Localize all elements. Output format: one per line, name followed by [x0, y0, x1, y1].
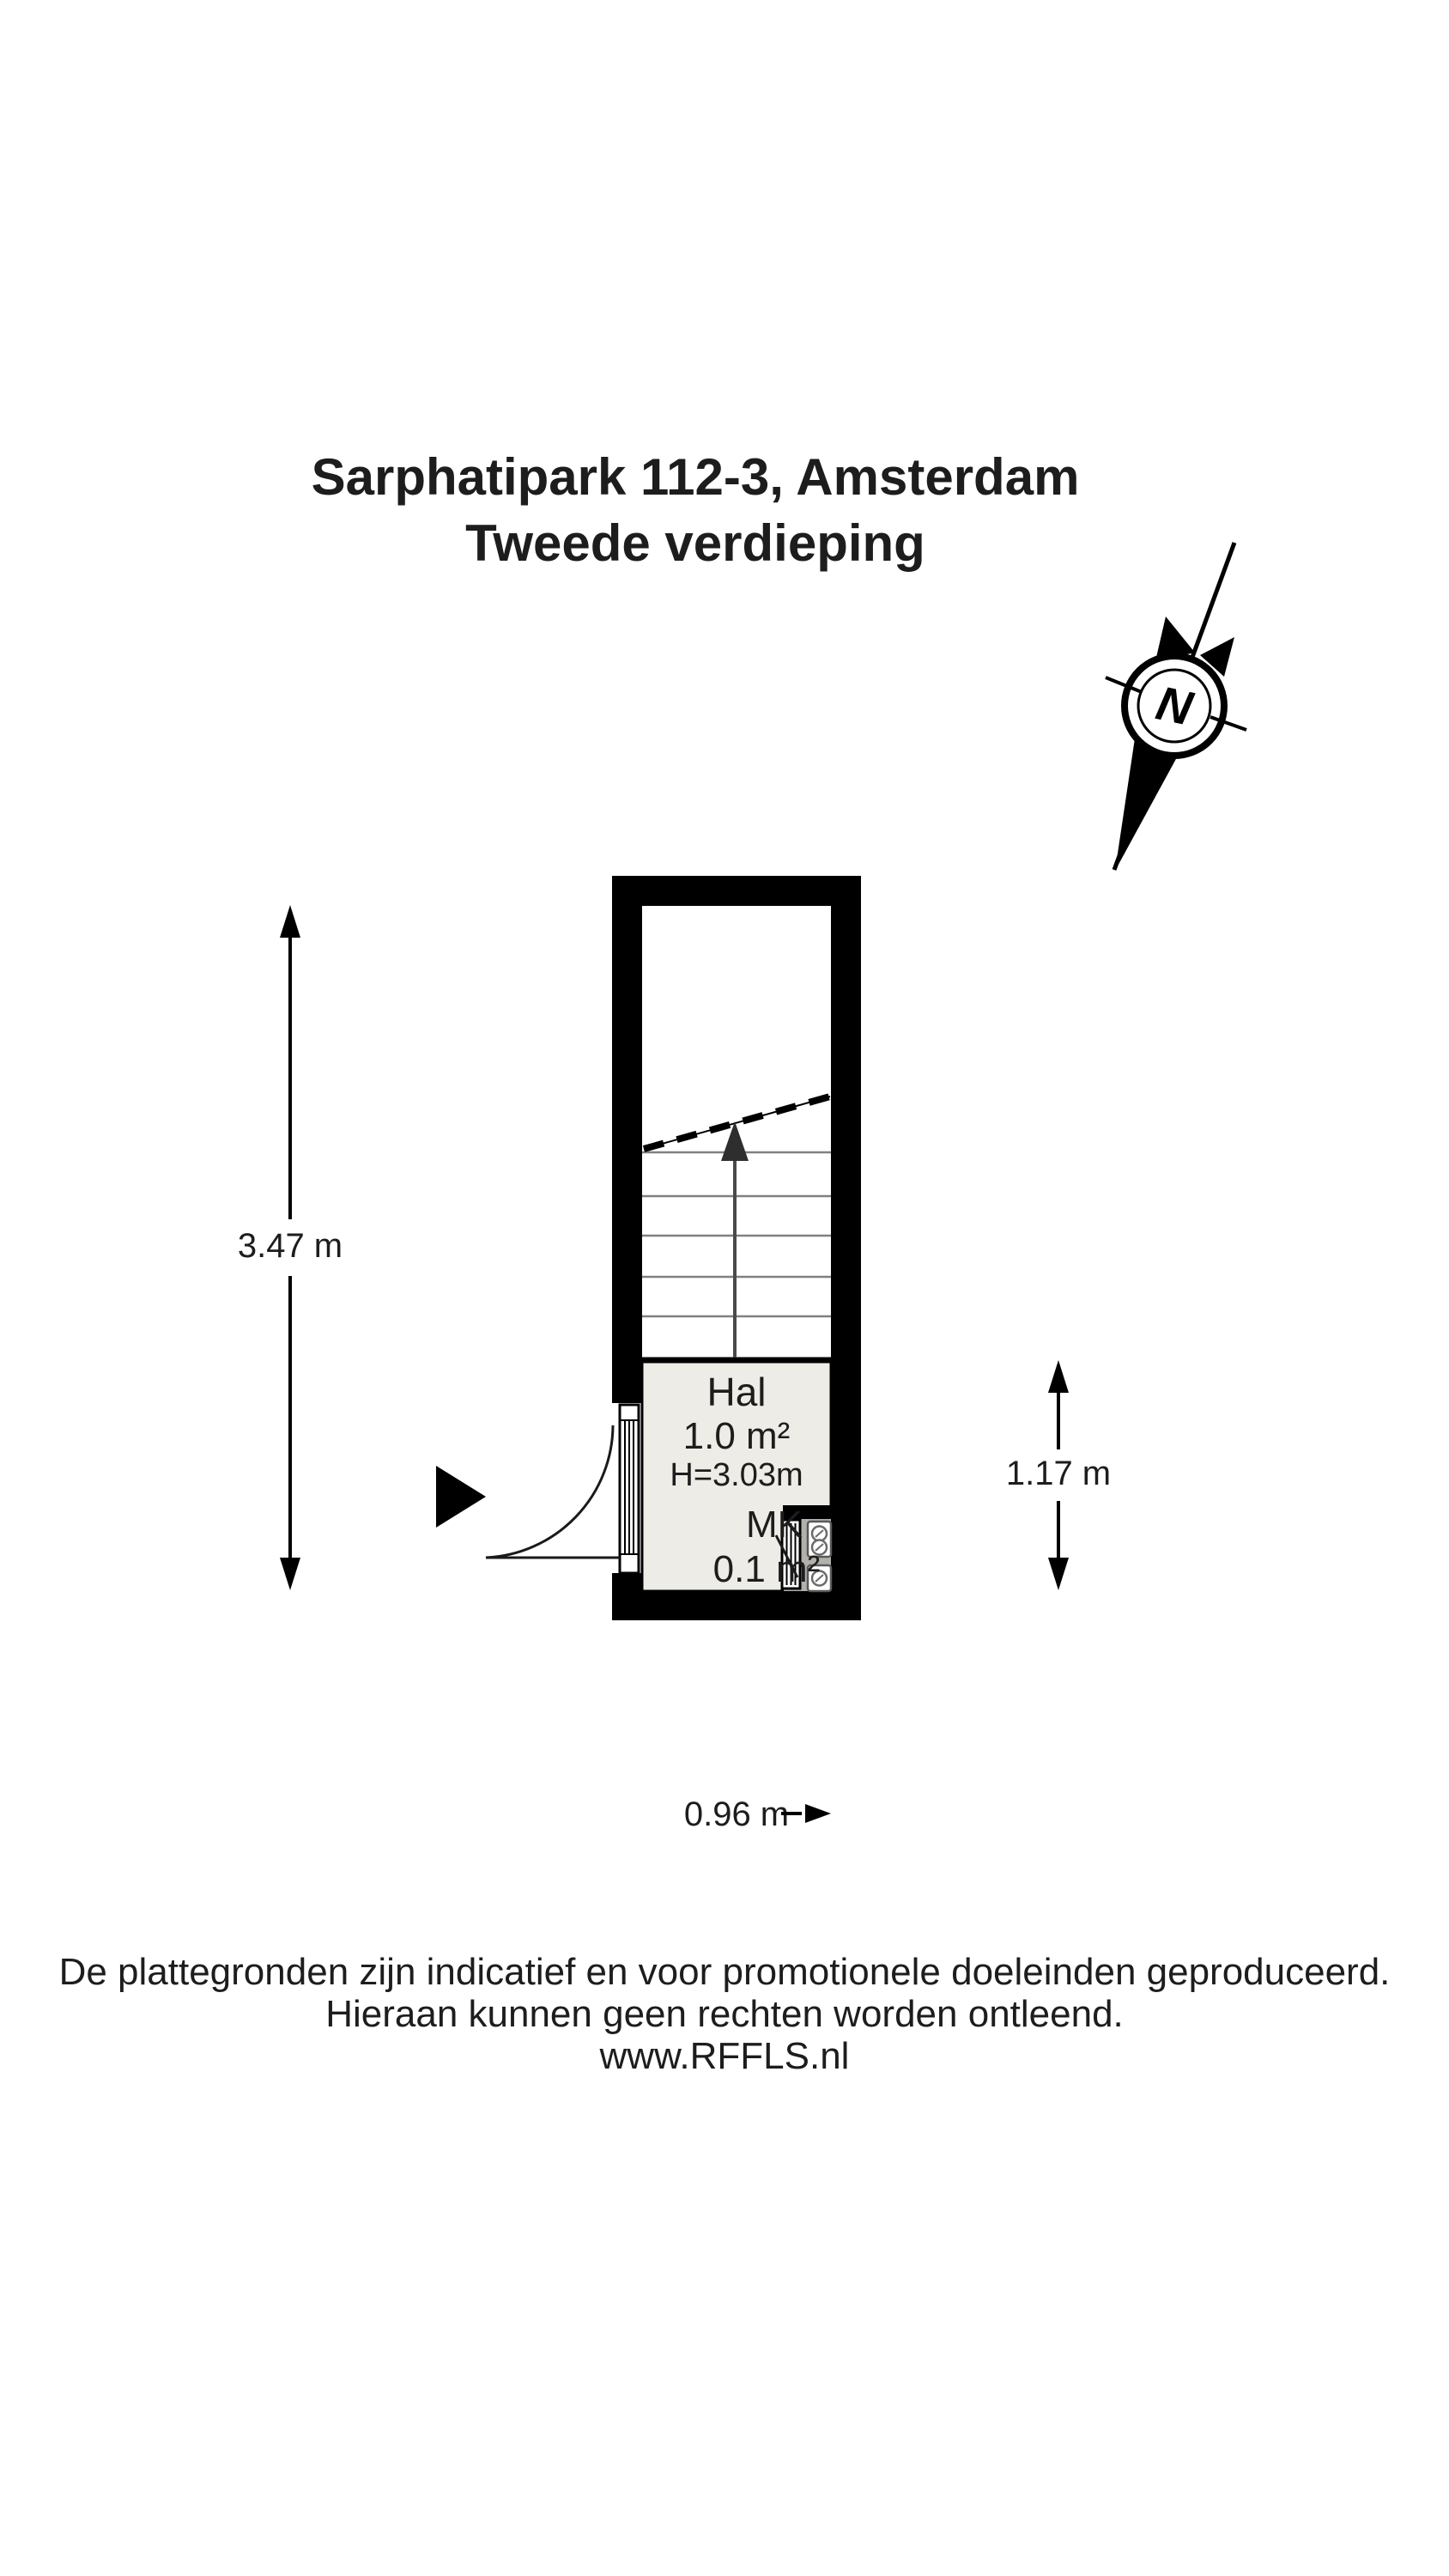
- door-swing-arc: [486, 1425, 613, 1558]
- dim-left-label: 3.47 m: [196, 1226, 385, 1266]
- dim-arrowhead-right: [805, 1804, 831, 1823]
- mk-room-area: 0.1 m²: [681, 1550, 852, 1589]
- dim-bottom-label: 0.96 m: [642, 1795, 831, 1834]
- dim-arrowhead-up: [280, 905, 300, 938]
- entrance-arrow: [436, 1466, 486, 1528]
- floorplan-drawing: [0, 0, 1449, 2576]
- disclaimer-website: www.RFFLS.nl: [0, 2035, 1449, 2077]
- mk-room-name: MK: [731, 1505, 817, 1545]
- wall-left-lower: [612, 1573, 642, 1620]
- disclaimer: De plattegronden zijn indicatief en voor…: [0, 1951, 1449, 2077]
- dim-line: [1057, 1389, 1060, 1449]
- floorplan-page: { "title": { "line1": "Sarphatipark 112-…: [0, 0, 1449, 2576]
- dim-arrowhead-up: [1048, 1360, 1069, 1393]
- dim-arrowhead-down: [280, 1558, 300, 1590]
- hal-room-area: 1.0 m²: [651, 1416, 822, 1457]
- hal-room-name: Hal: [651, 1370, 822, 1413]
- dim-right-label: 1.17 m: [964, 1454, 1153, 1493]
- wall-top: [612, 876, 861, 906]
- dim-line: [288, 934, 292, 1219]
- dim-line: [1057, 1501, 1060, 1561]
- dim-arrowhead-down: [1048, 1558, 1069, 1590]
- dim-line: [288, 1276, 292, 1561]
- disclaimer-line-2: Hieraan kunnen geen rechten worden ontle…: [0, 1993, 1449, 2035]
- disclaimer-line-1: De plattegronden zijn indicatief en voor…: [0, 1951, 1449, 1993]
- entrance-door: [436, 1405, 639, 1573]
- hal-ceiling-height: H=3.03m: [651, 1457, 822, 1493]
- wall-bottom: [612, 1591, 861, 1620]
- wall-right: [831, 876, 861, 1620]
- dim-line: [781, 1812, 802, 1815]
- wall-left-upper: [612, 876, 642, 1403]
